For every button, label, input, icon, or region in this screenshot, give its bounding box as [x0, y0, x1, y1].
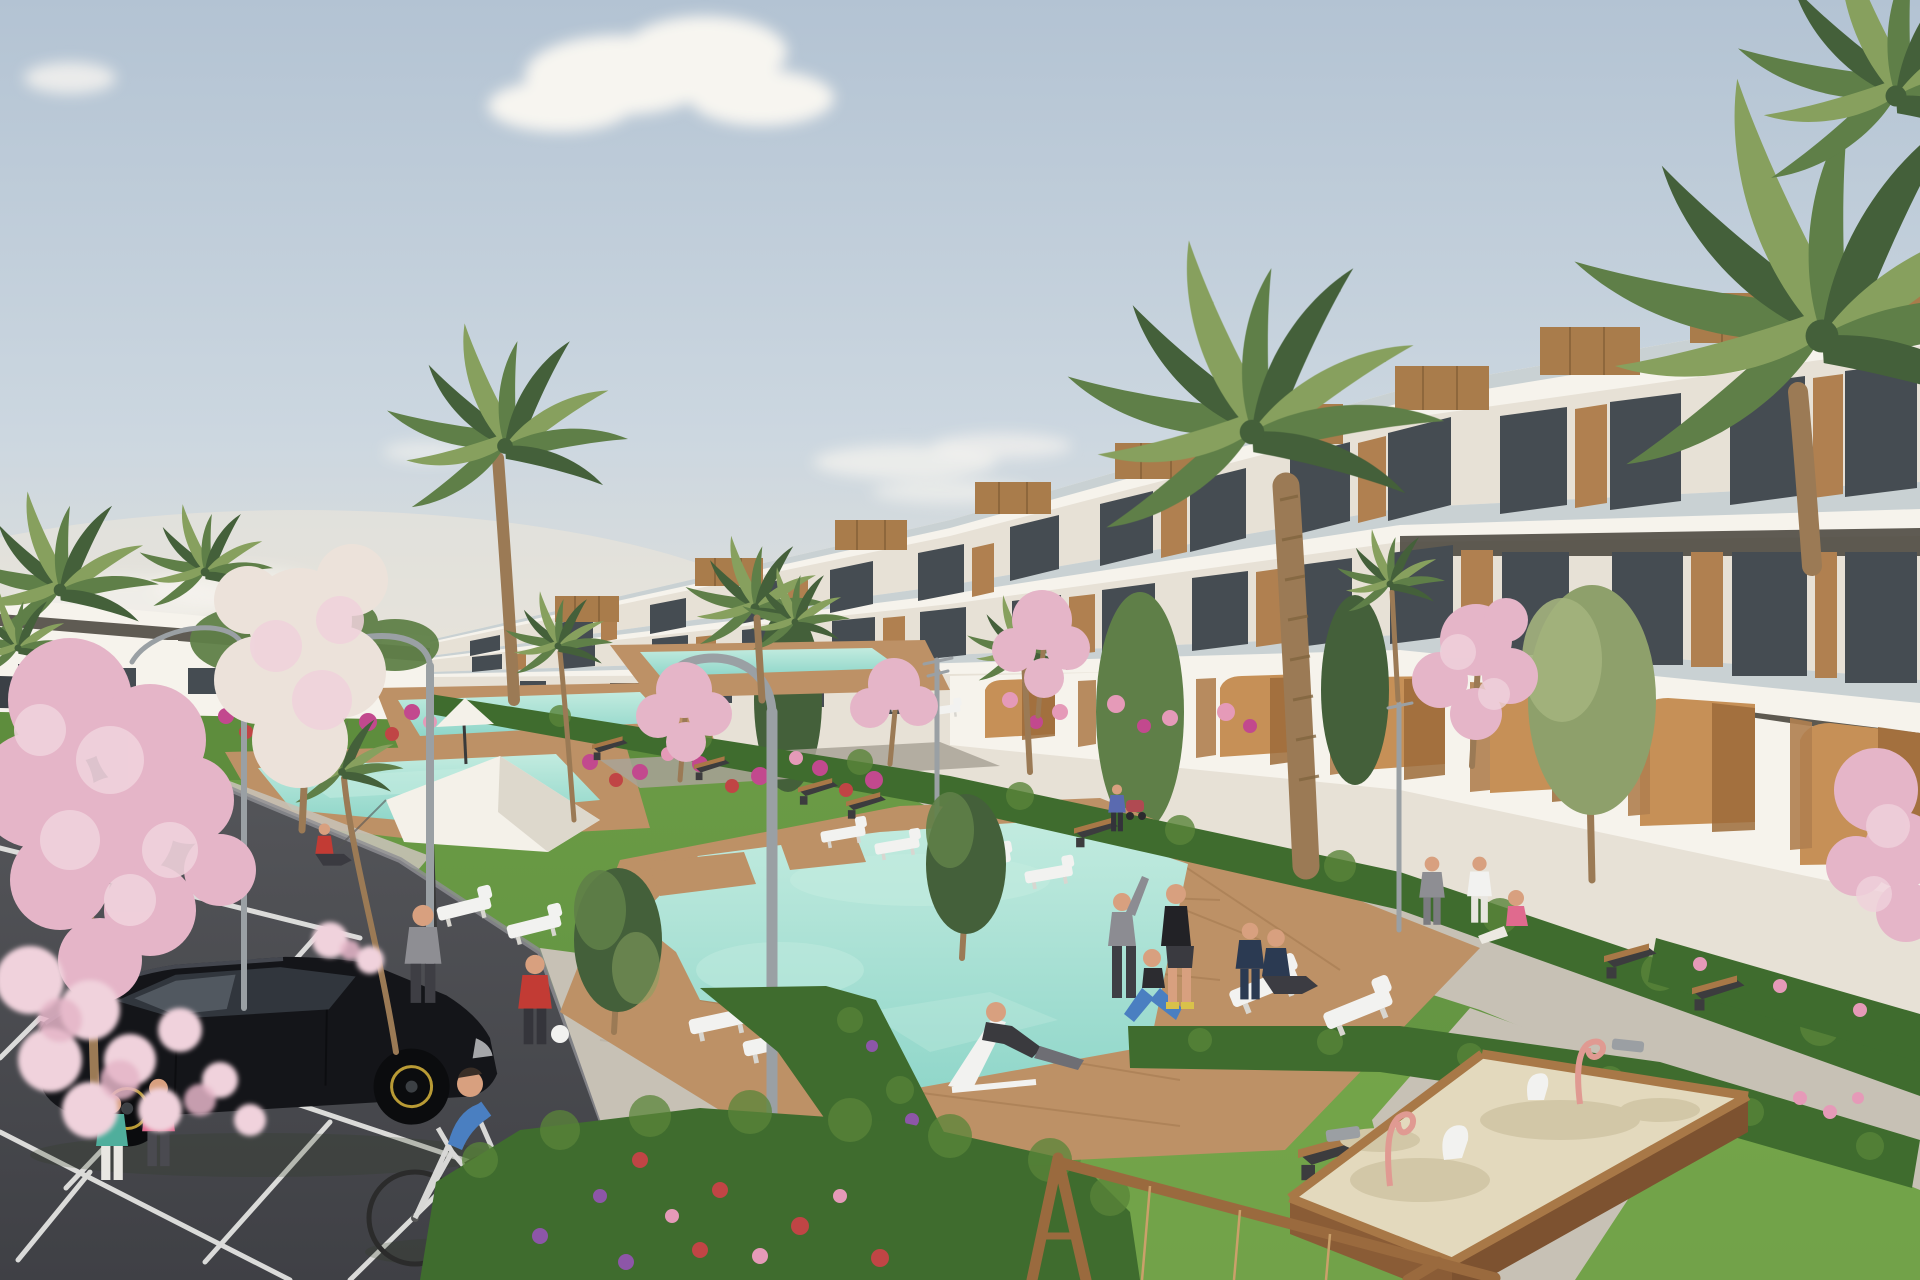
render-scene [0, 0, 1920, 1280]
architectural-render [0, 0, 1920, 1280]
poplar-tree [1321, 595, 1389, 785]
